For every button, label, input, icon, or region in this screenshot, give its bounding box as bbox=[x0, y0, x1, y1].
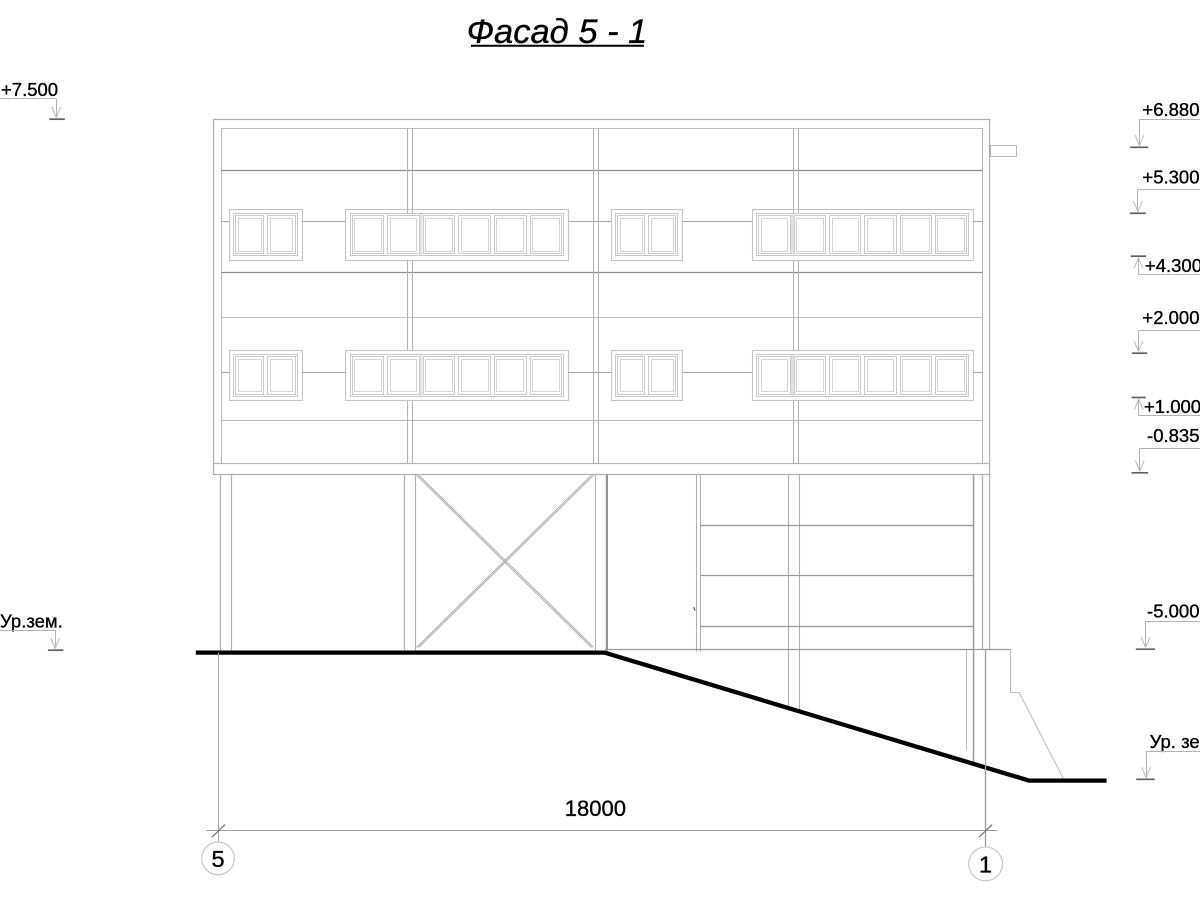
svg-text:5: 5 bbox=[212, 846, 225, 872]
svg-text:Ур.зем.: Ур.зем. bbox=[0, 611, 63, 632]
svg-text:-0.835: -0.835 bbox=[1147, 425, 1199, 446]
svg-text:+1.000: +1.000 bbox=[1144, 396, 1200, 417]
svg-text:18000: 18000 bbox=[565, 796, 626, 821]
svg-text:+7.500: +7.500 bbox=[1, 79, 58, 100]
svg-text:+4.300: +4.300 bbox=[1145, 255, 1200, 276]
svg-text:+2.000: +2.000 bbox=[1142, 307, 1199, 328]
svg-text:1: 1 bbox=[979, 851, 992, 877]
svg-text:+6.880: +6.880 bbox=[1142, 99, 1199, 120]
svg-text:+5.300: +5.300 bbox=[1142, 166, 1199, 187]
svg-text:Ур. земли: Ур. земли bbox=[1150, 731, 1200, 752]
svg-text:-5.000: -5.000 bbox=[1147, 601, 1199, 622]
